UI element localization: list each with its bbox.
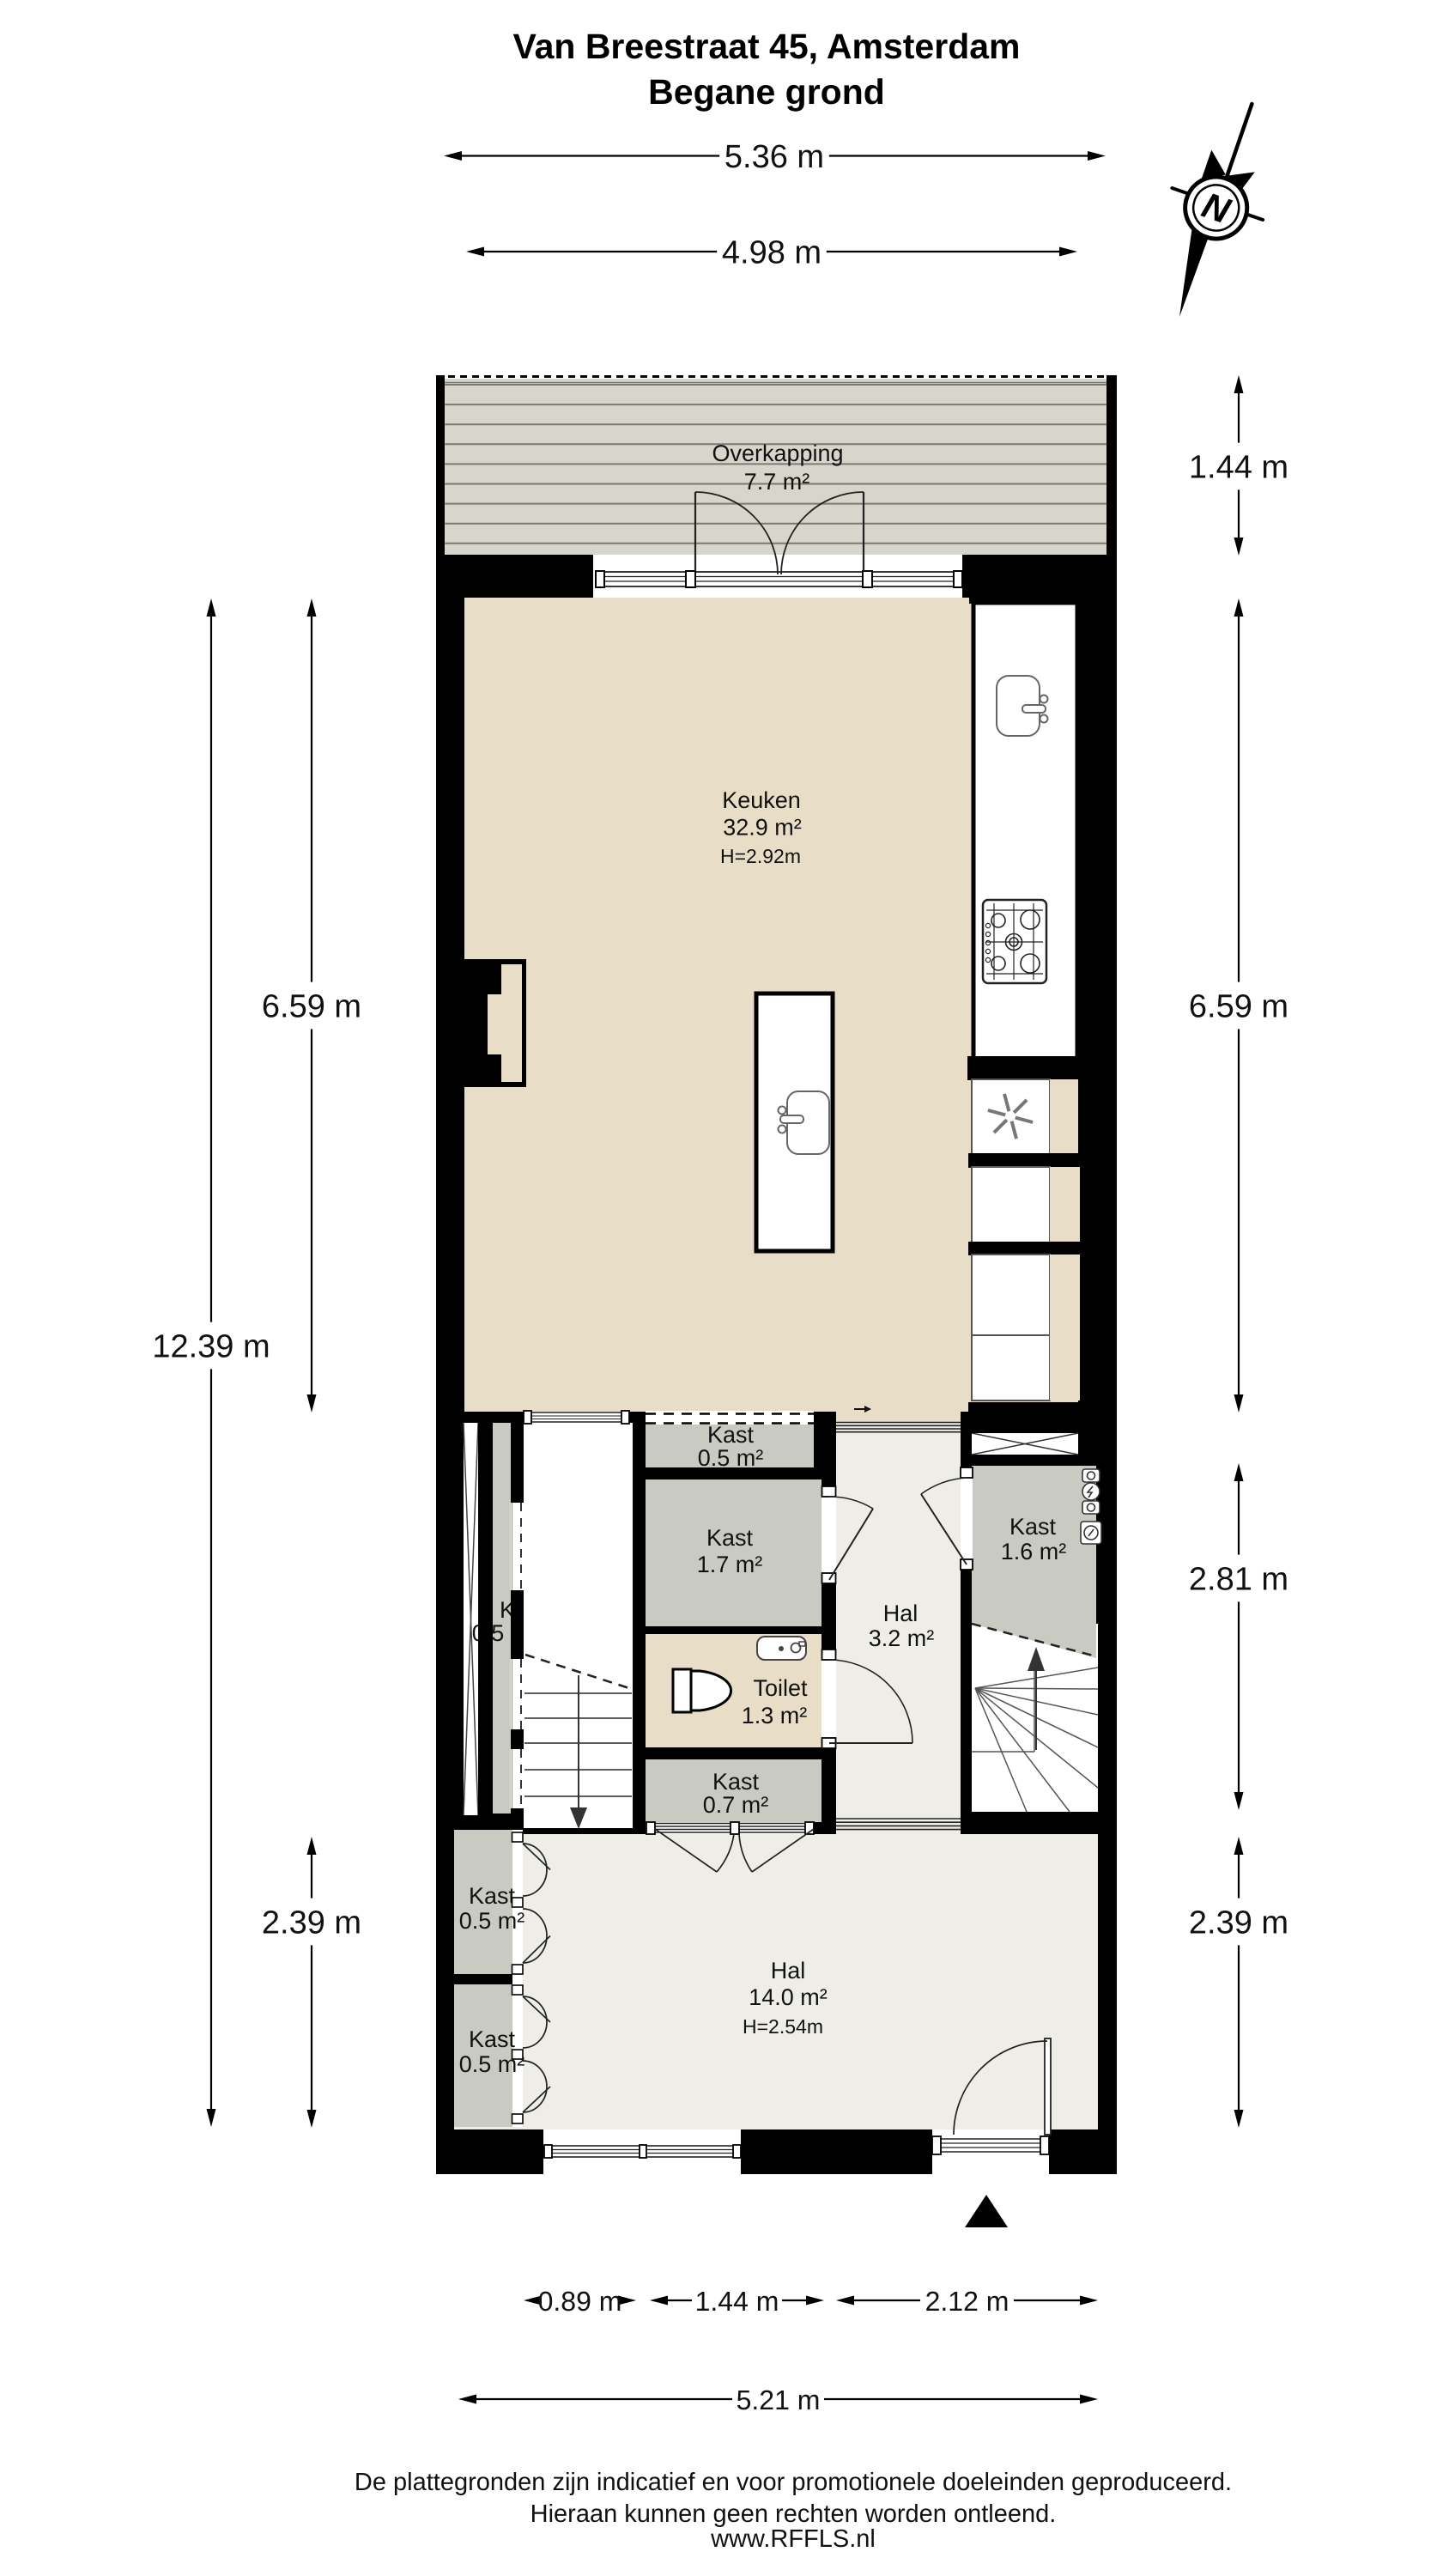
- svg-text:2.39 m: 2.39 m: [262, 1905, 361, 1941]
- svg-text:Kast: Kast: [469, 2026, 516, 2052]
- svg-text:2.39 m: 2.39 m: [1189, 1905, 1288, 1941]
- svg-text:H=2.92m: H=2.92m: [720, 845, 801, 867]
- svg-text:6.59 m: 6.59 m: [262, 989, 361, 1025]
- svg-text:Kast: Kast: [469, 1883, 516, 1909]
- svg-text:1.44 m: 1.44 m: [1189, 450, 1288, 486]
- svg-text:0.5 m²: 0.5 m²: [459, 1908, 525, 1934]
- svg-text:14.0 m²: 14.0 m²: [749, 1984, 828, 2010]
- svg-text:Toilet: Toilet: [753, 1675, 808, 1701]
- svg-text:Hal: Hal: [883, 1601, 919, 1626]
- svg-text:0.89 m: 0.89 m: [538, 2286, 622, 2317]
- svg-text:Kast: Kast: [712, 1769, 760, 1795]
- svg-text:32.9 m²: 32.9 m²: [723, 815, 802, 841]
- svg-text:1.44 m: 1.44 m: [695, 2286, 779, 2317]
- svg-text:Hieraan kunnen geen rechten wo: Hieraan kunnen geen rechten worden ontle…: [530, 2500, 1057, 2528]
- svg-text:3.2 m²: 3.2 m²: [869, 1625, 935, 1651]
- svg-text:Keuken: Keuken: [722, 787, 801, 813]
- svg-text:5.36 m: 5.36 m: [724, 139, 824, 175]
- svg-text:Kast: Kast: [706, 1525, 754, 1551]
- svg-text:Begane grond: Begane grond: [648, 72, 885, 112]
- svg-text:1.3 m²: 1.3 m²: [742, 1703, 808, 1728]
- svg-text:Kast: Kast: [707, 1422, 755, 1448]
- svg-text:Kast: Kast: [1009, 1514, 1057, 1540]
- svg-text:0.5 m²: 0.5 m²: [698, 1445, 764, 1471]
- svg-text:De plattegronden zijn indicati: De plattegronden zijn indicatief en voor…: [355, 2469, 1232, 2496]
- svg-text:0.7 m²: 0.7 m²: [703, 1792, 769, 1818]
- svg-text:7.7 m²: 7.7 m²: [744, 469, 810, 495]
- svg-text:Van Breestraat 45, Amsterdam: Van Breestraat 45, Amsterdam: [513, 27, 1021, 66]
- svg-text:Hal: Hal: [771, 1958, 806, 1984]
- svg-text:1.7 m²: 1.7 m²: [697, 1552, 763, 1577]
- svg-text:12.39 m: 12.39 m: [152, 1329, 270, 1365]
- svg-text:6.59 m: 6.59 m: [1189, 989, 1288, 1025]
- svg-text:5.21 m: 5.21 m: [737, 2385, 821, 2415]
- svg-text:2.81 m: 2.81 m: [1189, 1562, 1288, 1598]
- svg-text:1.6 m²: 1.6 m²: [1001, 1539, 1067, 1564]
- svg-text:www.RFFLS.nl: www.RFFLS.nl: [710, 2525, 876, 2553]
- svg-text:Overkapping: Overkapping: [712, 440, 843, 466]
- svg-text:4.98 m: 4.98 m: [722, 235, 822, 271]
- svg-text:2.12 m: 2.12 m: [925, 2286, 1009, 2317]
- svg-text:H=2.54m: H=2.54m: [743, 2015, 823, 2038]
